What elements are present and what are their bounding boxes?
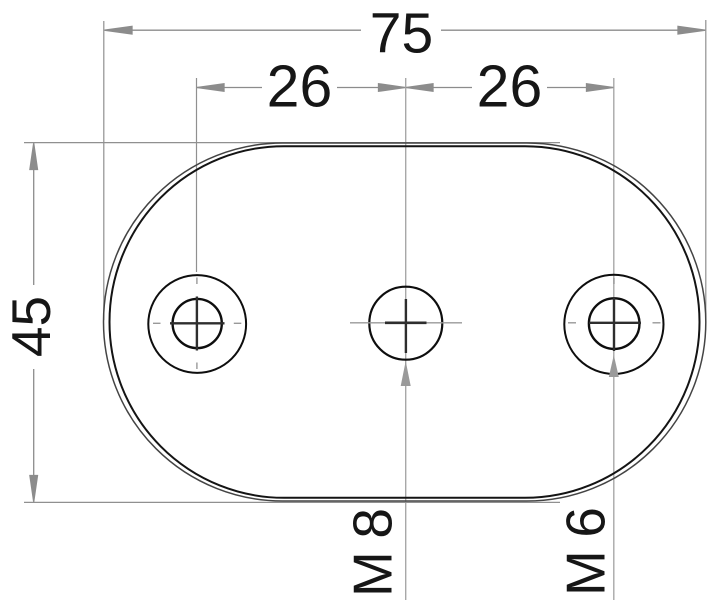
svg-text:26: 26 — [477, 54, 543, 120]
svg-text:45: 45 — [0, 296, 62, 357]
svg-text:M6: M6 — [555, 507, 617, 596]
svg-text:75: 75 — [370, 2, 433, 66]
svg-text:M8: M8 — [342, 508, 404, 597]
svg-text:26: 26 — [267, 54, 333, 120]
